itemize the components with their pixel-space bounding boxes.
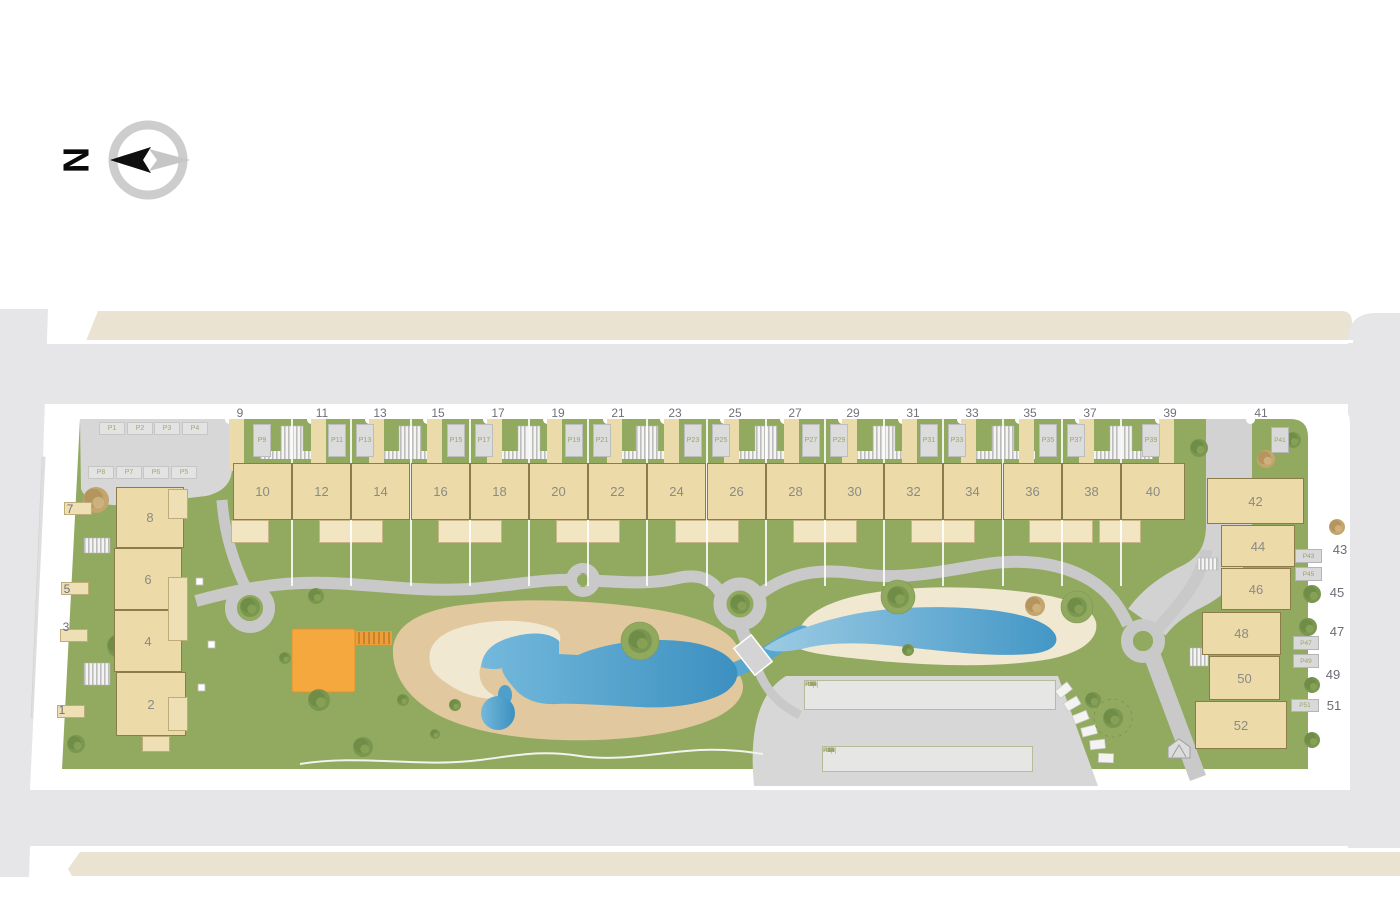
street-number-1: 1 (52, 703, 72, 716)
rear-patio (168, 697, 188, 731)
house-44: 44 (1221, 525, 1295, 567)
house-4-label: 4 (144, 634, 151, 649)
parking-stall-P11: P11 (328, 424, 346, 457)
parking-stall-P7: P7 (116, 466, 142, 479)
parking-stall-P6: P6 (143, 466, 169, 479)
parking-stall-P47: P47 (1293, 636, 1319, 650)
house-18-label: 18 (492, 484, 506, 499)
parking-stall-P23: P23 (684, 424, 702, 457)
street-number-3: 3 (56, 620, 76, 633)
house-42: 42 (1207, 478, 1304, 524)
house-30: 30 (825, 463, 884, 520)
parking-stall-P19: P19 (565, 424, 583, 457)
parking-stall-P27: P27 (802, 424, 820, 457)
parking-stall-P31: P31 (920, 424, 938, 457)
house-48-label: 48 (1234, 626, 1248, 641)
rear-patio (168, 489, 188, 519)
parking-stall-P49: P49 (1293, 654, 1319, 668)
rear-patio (142, 736, 170, 752)
street-number-11: 11 (311, 406, 333, 419)
house-52: 52 (1195, 701, 1287, 749)
parking-stall-P35: P35 (1039, 424, 1057, 457)
street-number-49: 49 (1322, 667, 1344, 681)
house-24: 24 (647, 463, 706, 520)
house-26-label: 26 (729, 484, 743, 499)
parking-stall-P37: P37 (1067, 424, 1085, 457)
house-12: 12 (292, 463, 351, 520)
street-number-13: 13 (369, 406, 391, 419)
street-number-23: 23 (664, 406, 686, 419)
parking-stall-P5: P5 (171, 466, 197, 479)
street-number-9: 9 (229, 406, 251, 419)
house-36-label: 36 (1025, 484, 1039, 499)
parking-stall-P41: P41 (1271, 427, 1289, 453)
parking-stall-P9: P9 (253, 424, 271, 457)
house-12-label: 12 (314, 484, 328, 499)
house-20: 20 (529, 463, 588, 520)
street-number-51: 51 (1323, 698, 1345, 712)
labels-overlay: 9111315171921232527293133353739411012141… (0, 0, 1400, 905)
street-number-27: 27 (784, 406, 806, 419)
parking-stall-P13: P13 (356, 424, 374, 457)
house-52-label: 52 (1234, 718, 1248, 733)
street-number-15: 15 (427, 406, 449, 419)
house-6-label: 6 (144, 572, 151, 587)
rear-patio (168, 577, 188, 641)
house-48: 48 (1202, 612, 1281, 655)
street-number-31: 31 (902, 406, 924, 419)
street-number-41: 41 (1250, 406, 1272, 419)
street-number-39: 39 (1159, 406, 1181, 419)
parking-stall-P33: P33 (948, 424, 966, 457)
house-38: 38 (1062, 463, 1121, 520)
house-20-label: 20 (551, 484, 565, 499)
parking-stall-P45: P45 (1295, 567, 1322, 581)
street-number-43: 43 (1329, 542, 1351, 556)
house-16-label: 16 (433, 484, 447, 499)
house-10: 10 (233, 463, 292, 520)
parking-stall-P2: P2 (127, 422, 153, 435)
parking-stall-P21: P21 (593, 424, 611, 457)
house-46-label: 46 (1249, 582, 1263, 597)
house-8-label: 8 (146, 510, 153, 525)
street-number-5: 5 (57, 582, 77, 595)
house-34: 34 (943, 463, 1002, 520)
street-number-19: 19 (547, 406, 569, 419)
site-plan: N 91113151719212325272931333537394110121… (0, 0, 1400, 905)
parking-stall-P4: P4 (182, 422, 208, 435)
parking-stall-P8: P8 (88, 466, 114, 479)
street-number-45: 45 (1326, 585, 1348, 599)
street-number-21: 21 (607, 406, 629, 419)
central-parking-row: R4R2P52P48P44P40P36P32P28P24P20P16P12 (822, 746, 1033, 772)
patio (231, 520, 269, 543)
house-38-label: 38 (1084, 484, 1098, 499)
house-46: 46 (1221, 568, 1291, 610)
street-number-47: 47 (1326, 624, 1348, 638)
house-42-label: 42 (1248, 494, 1262, 509)
street-number-25: 25 (724, 406, 746, 419)
house-10-label: 10 (255, 484, 269, 499)
parking-stall-P3: P3 (154, 422, 180, 435)
house-16: 16 (411, 463, 470, 520)
house-36: 36 (1003, 463, 1062, 520)
street-number-37: 37 (1079, 406, 1101, 419)
house-44-label: 44 (1251, 539, 1265, 554)
house-50: 50 (1209, 656, 1280, 700)
house-14: 14 (351, 463, 410, 520)
house-24-label: 24 (669, 484, 683, 499)
parking-stall-P10: P10 (805, 681, 817, 688)
parking-stall-P25: P25 (712, 424, 730, 457)
house-30-label: 30 (847, 484, 861, 499)
house-40-label: 40 (1146, 484, 1160, 499)
street-number-33: 33 (961, 406, 983, 419)
parking-stall-P43: P43 (1295, 549, 1322, 563)
house-28-label: 28 (788, 484, 802, 499)
street-number-7: 7 (60, 502, 80, 515)
house-40: 40 (1121, 463, 1185, 520)
house-14-label: 14 (373, 484, 387, 499)
parking-stall-P1: P1 (99, 422, 125, 435)
parking-stall-P39: P39 (1142, 424, 1160, 457)
house-18: 18 (470, 463, 529, 520)
house-22: 22 (588, 463, 647, 520)
street-number-17: 17 (487, 406, 509, 419)
house-28: 28 (766, 463, 825, 520)
street-number-35: 35 (1019, 406, 1041, 419)
central-parking-row: R6R5R3R1P50P46P42P38P34P30P26P22P18P14P1… (804, 680, 1056, 710)
parking-stall-P15: P15 (447, 424, 465, 457)
parking-stall-P29: P29 (830, 424, 848, 457)
house-32-label: 32 (906, 484, 920, 499)
street-number-29: 29 (842, 406, 864, 419)
house-32: 32 (884, 463, 943, 520)
parking-stall-P51: P51 (1291, 699, 1319, 712)
parking-stall-P12: P12 (823, 747, 835, 754)
parking-stall-P17: P17 (475, 424, 493, 457)
house-34-label: 34 (965, 484, 979, 499)
house-2-label: 2 (147, 697, 154, 712)
house-26: 26 (707, 463, 766, 520)
house-50-label: 50 (1237, 671, 1251, 686)
house-22-label: 22 (610, 484, 624, 499)
